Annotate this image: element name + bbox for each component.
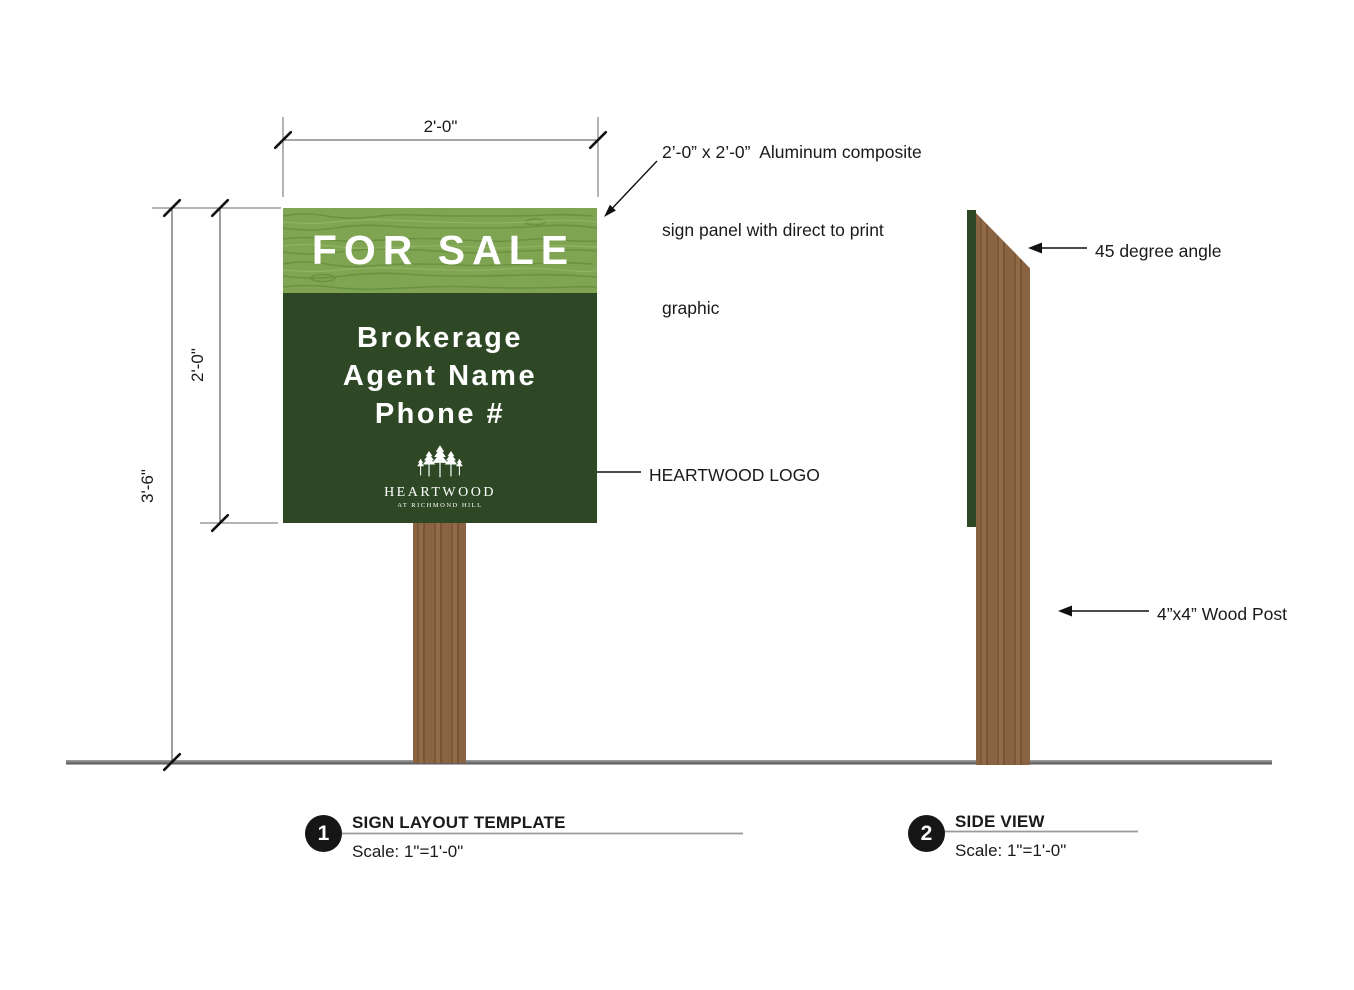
- sign-panel: FOR SALE Brokerage Agent Name Phone #: [283, 208, 597, 523]
- wood-post-side-view: [976, 213, 1030, 765]
- arrowhead-icon: [1058, 606, 1072, 617]
- sign-line-brokerage: Brokerage: [283, 319, 597, 357]
- panel-note-line-2: sign panel with direct to print: [662, 217, 922, 243]
- panel-note-line-1: 2’-0” x 2’-0” Aluminum composite: [662, 139, 922, 165]
- arrowhead-icon: [1028, 243, 1042, 254]
- callout-2-scale: Scale: 1"=1'-0": [955, 841, 1066, 861]
- post-note: 4”x4” Wood Post: [1157, 601, 1287, 627]
- callout-1-badge: 1: [305, 815, 342, 852]
- arrowhead-icon: [604, 205, 616, 217]
- tick-icon: [164, 200, 180, 216]
- panel-note: 2’-0” x 2’-0” Aluminum composite sign pa…: [662, 87, 922, 373]
- sign-body: Brokerage Agent Name Phone #: [283, 293, 597, 523]
- ground-line: [66, 760, 1272, 765]
- callout-1-scale: Scale: 1"=1'-0": [352, 842, 463, 862]
- sign-line-agent-name: Agent Name: [283, 357, 597, 395]
- pine-trees-icon: [413, 445, 467, 479]
- callout-1-title: SIGN LAYOUT TEMPLATE: [352, 813, 566, 833]
- sign-header-band: FOR SALE: [283, 208, 597, 293]
- angle-note: 45 degree angle: [1095, 238, 1222, 264]
- dimension-sign-height-label: 2'-0": [188, 335, 208, 395]
- callout-2-badge: 2: [908, 815, 945, 852]
- tick-icon: [164, 754, 180, 770]
- logo-note: HEARTWOOD LOGO: [649, 462, 820, 488]
- sign-panel-side-profile: [967, 210, 976, 527]
- panel-note-line-3: graphic: [662, 295, 922, 321]
- callout-1-number: 1: [318, 822, 330, 846]
- callout-2-title: SIDE VIEW: [955, 812, 1045, 832]
- heartwood-logo: HEARTWOOD AT RICHMOND HILL: [283, 445, 597, 509]
- leader-line-panel-note: [613, 161, 657, 208]
- dimension-width-label: 2'-0": [283, 117, 598, 137]
- sign-headline: FOR SALE: [283, 208, 597, 293]
- tick-icon: [212, 200, 228, 216]
- logo-wordmark: HEARTWOOD: [283, 485, 597, 501]
- wood-post-front-view: [413, 523, 466, 763]
- tick-icon: [212, 515, 228, 531]
- sign-spec-drawing: FOR SALE Brokerage Agent Name Phone #: [0, 0, 1354, 990]
- dimension-total-height-label: 3'-6": [138, 456, 158, 516]
- sign-line-phone: Phone #: [283, 395, 597, 433]
- callout-2-number: 2: [921, 822, 933, 846]
- logo-tagline: AT RICHMOND HILL: [283, 502, 597, 509]
